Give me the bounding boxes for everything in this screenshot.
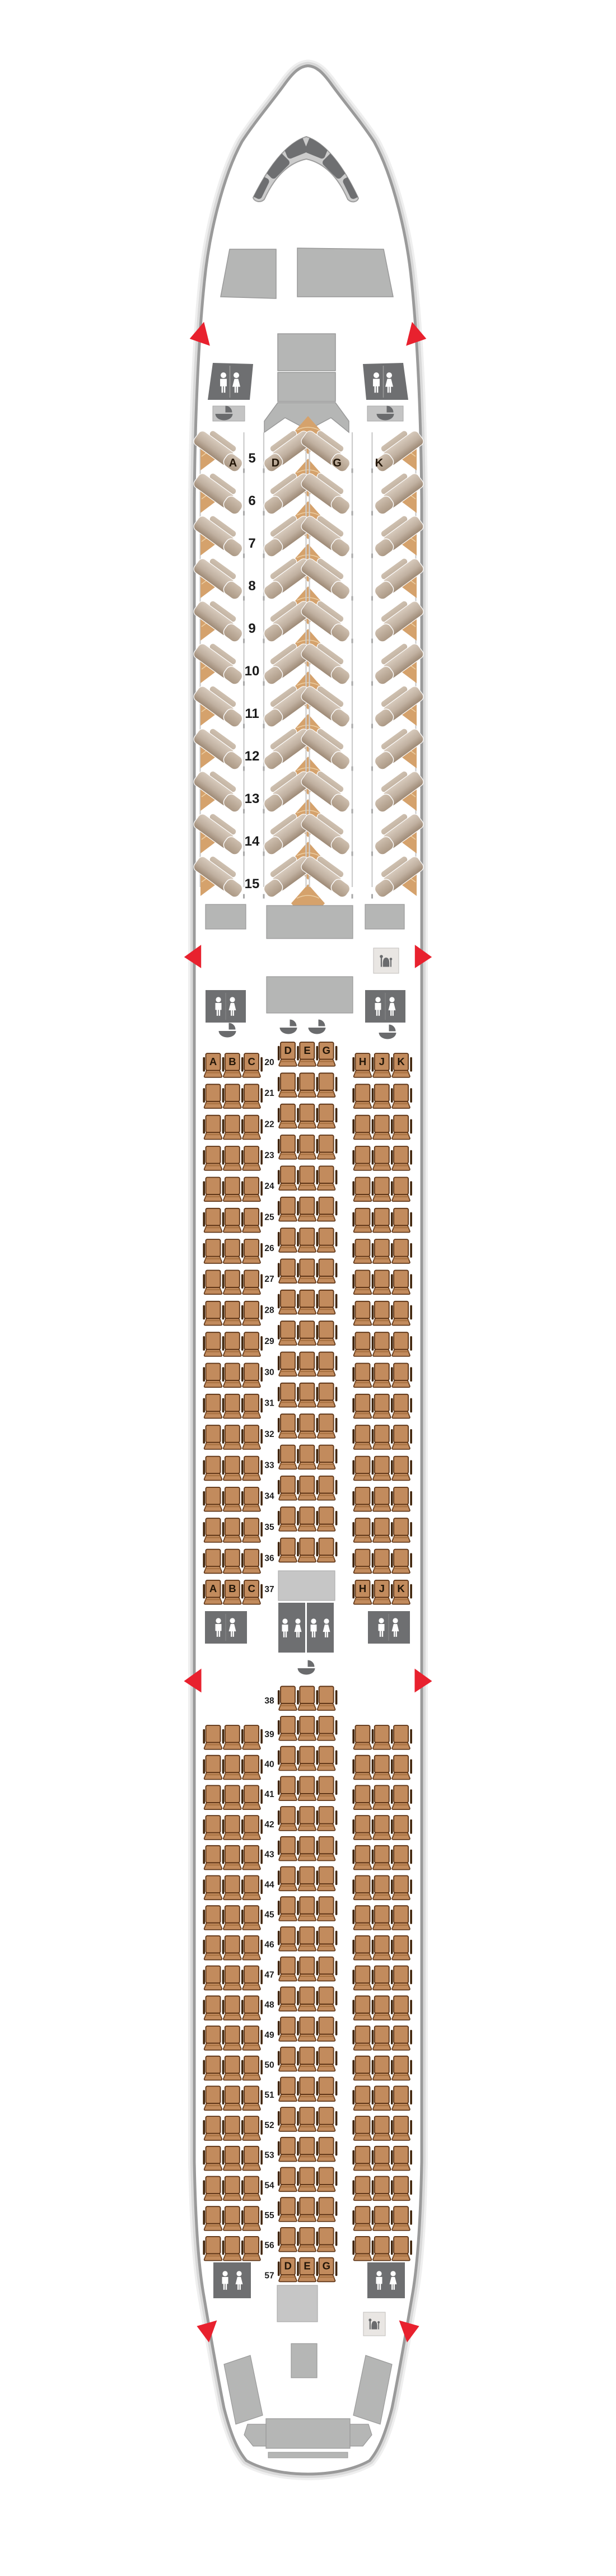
svg-text:46: 46: [264, 1940, 274, 1950]
svg-text:H: H: [359, 1056, 366, 1067]
svg-text:J: J: [379, 1056, 385, 1067]
svg-text:32: 32: [264, 1430, 274, 1439]
svg-text:25: 25: [264, 1213, 274, 1222]
svg-text:35: 35: [264, 1523, 274, 1532]
svg-text:38: 38: [264, 1696, 274, 1706]
svg-text:A: A: [209, 1056, 217, 1067]
svg-text:K: K: [397, 1056, 405, 1067]
svg-text:8: 8: [248, 578, 255, 594]
svg-text:48: 48: [264, 2000, 274, 2010]
svg-text:29: 29: [264, 1337, 274, 1346]
svg-text:D: D: [272, 457, 279, 469]
svg-text:H: H: [359, 1583, 366, 1594]
svg-text:G: G: [333, 457, 342, 469]
svg-text:K: K: [375, 457, 384, 469]
svg-text:36: 36: [264, 1553, 274, 1563]
svg-text:42: 42: [264, 1820, 274, 1830]
svg-text:47: 47: [264, 1970, 274, 1980]
svg-text:44: 44: [264, 1880, 274, 1889]
svg-text:22: 22: [264, 1120, 274, 1130]
svg-text:24: 24: [264, 1182, 274, 1191]
svg-text:55: 55: [264, 2211, 274, 2220]
svg-text:52: 52: [264, 2121, 274, 2130]
svg-text:B: B: [228, 1583, 236, 1594]
svg-text:37: 37: [264, 1585, 274, 1594]
svg-text:A: A: [209, 1583, 217, 1594]
svg-text:D: D: [284, 2260, 292, 2272]
svg-text:G: G: [323, 1044, 330, 1056]
svg-text:21: 21: [264, 1089, 274, 1098]
svg-text:53: 53: [264, 2151, 274, 2160]
svg-text:43: 43: [264, 1850, 274, 1860]
svg-text:54: 54: [264, 2181, 274, 2190]
svg-text:23: 23: [264, 1151, 274, 1160]
svg-text:10: 10: [245, 664, 260, 679]
svg-text:13: 13: [245, 791, 260, 806]
svg-text:G: G: [323, 2260, 330, 2272]
svg-text:B: B: [228, 1056, 236, 1067]
svg-text:50: 50: [264, 2061, 274, 2070]
svg-text:33: 33: [264, 1460, 274, 1470]
svg-text:30: 30: [264, 1368, 274, 1377]
svg-text:C: C: [248, 1583, 255, 1594]
svg-text:7: 7: [248, 536, 255, 551]
svg-text:14: 14: [245, 834, 260, 849]
svg-text:51: 51: [264, 2090, 274, 2100]
svg-text:49: 49: [264, 2031, 274, 2040]
svg-text:41: 41: [264, 1790, 274, 1799]
svg-text:12: 12: [245, 749, 260, 764]
svg-text:20: 20: [264, 1058, 274, 1067]
svg-text:45: 45: [264, 1910, 274, 1920]
svg-text:26: 26: [264, 1244, 274, 1253]
svg-text:34: 34: [264, 1492, 274, 1501]
svg-text:28: 28: [264, 1306, 274, 1315]
svg-text:27: 27: [264, 1275, 274, 1284]
svg-text:J: J: [379, 1583, 385, 1594]
svg-text:5: 5: [248, 451, 255, 466]
svg-text:57: 57: [264, 2271, 274, 2280]
svg-text:15: 15: [245, 876, 260, 892]
svg-text:C: C: [248, 1056, 255, 1067]
svg-text:39: 39: [264, 1730, 274, 1739]
svg-text:31: 31: [264, 1399, 274, 1408]
svg-text:K: K: [397, 1583, 405, 1594]
svg-text:E: E: [304, 1044, 310, 1056]
svg-text:E: E: [304, 2260, 310, 2272]
svg-text:11: 11: [245, 706, 259, 721]
svg-text:40: 40: [264, 1760, 274, 1770]
svg-text:A: A: [229, 457, 237, 469]
svg-text:56: 56: [264, 2241, 274, 2251]
svg-text:6: 6: [248, 493, 255, 508]
svg-text:9: 9: [248, 621, 255, 636]
svg-text:D: D: [284, 1044, 292, 1056]
